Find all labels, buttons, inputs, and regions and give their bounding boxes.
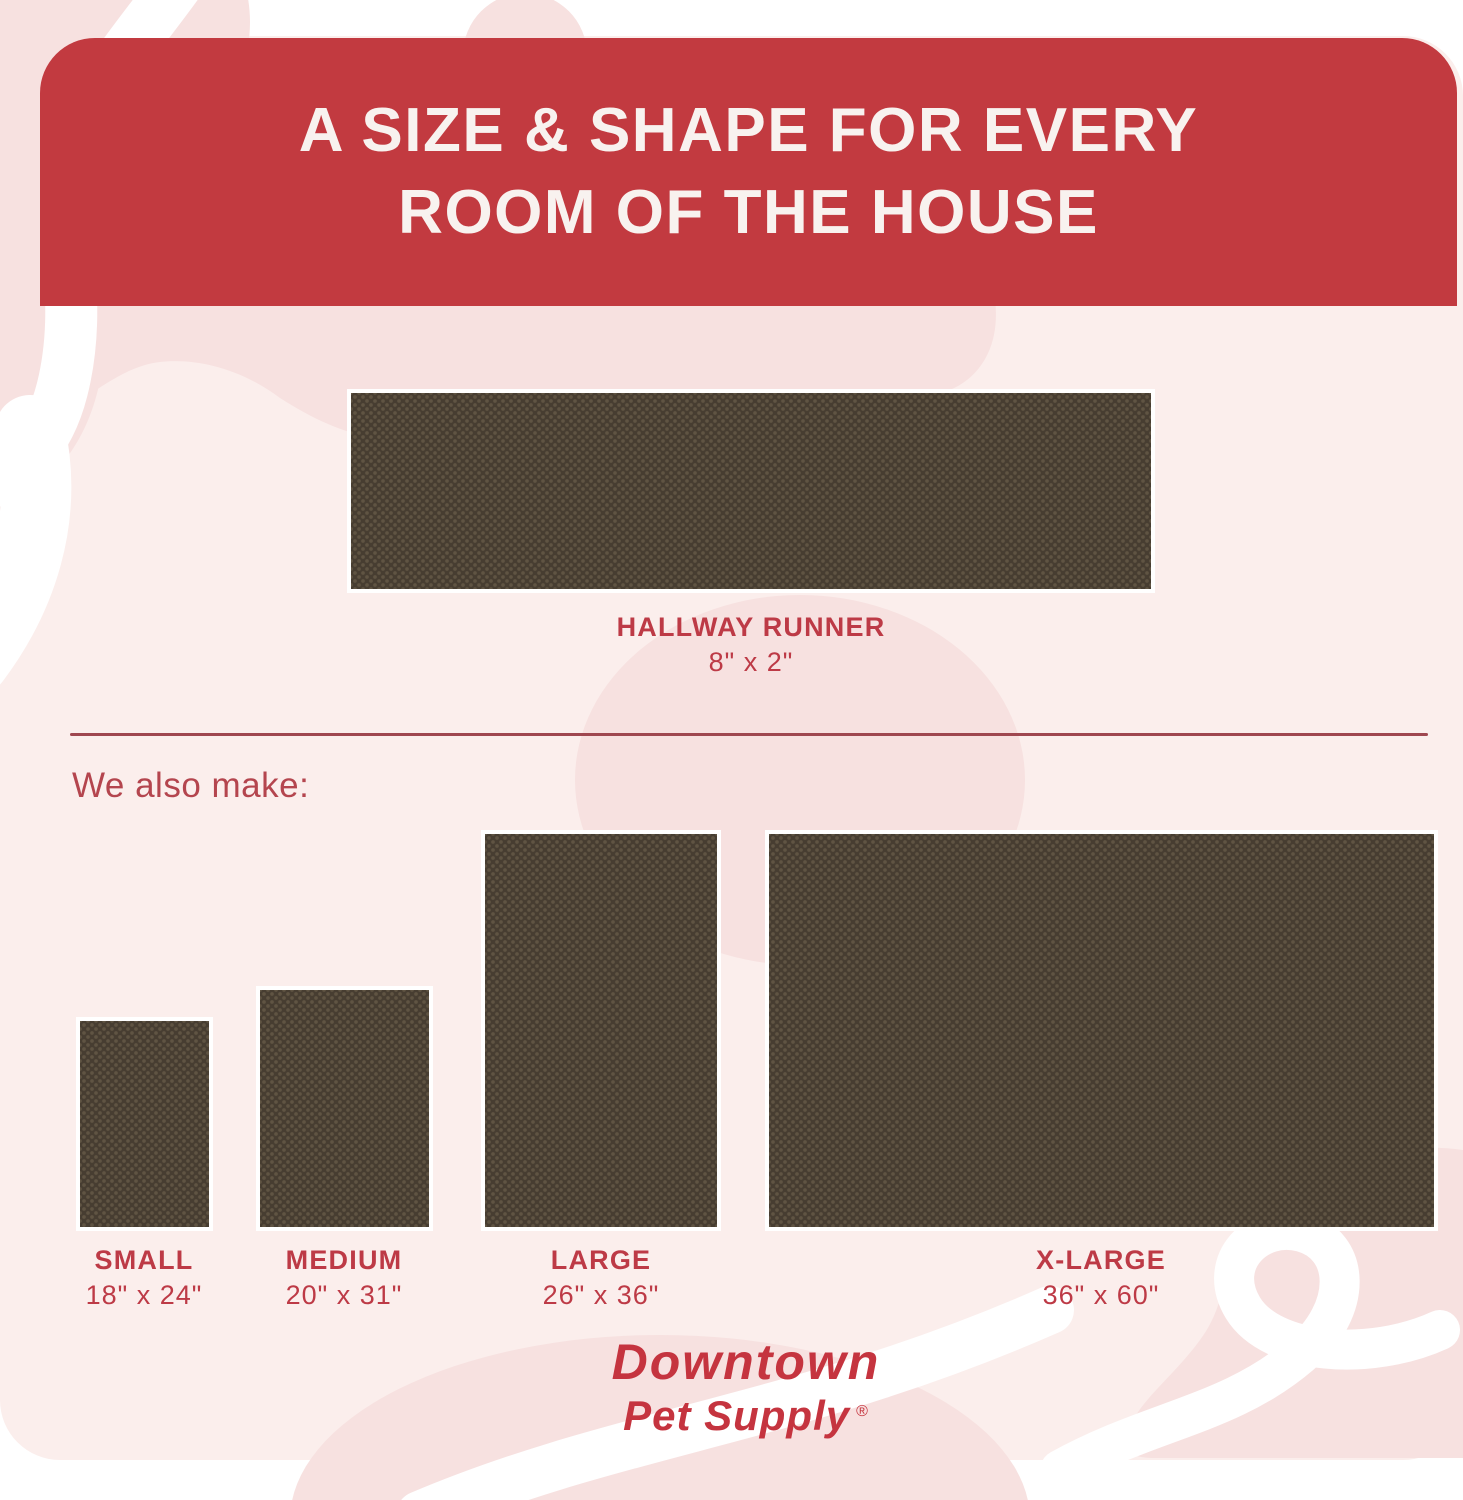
medium-size-label: 20" x 31" [194,1278,494,1312]
page-title-line1: A SIZE & SHAPE FOR EVERY [299,90,1199,172]
xlarge-size-label: 36" x 60" [951,1278,1251,1312]
brand-subname-text: Pet Supply [623,1392,850,1439]
size-guide-infographic: A SIZE & SHAPE FOR EVERY ROOM OF THE HOU… [0,0,1463,1500]
mat-medium [256,986,433,1231]
medium-name-label: MEDIUM [194,1242,494,1278]
mat-small [76,1017,213,1231]
xlarge-label: X-LARGE 36" x 60" [951,1242,1251,1312]
hallway-runner-label: HALLWAY RUNNER 8" x 2" [451,609,1051,679]
hallway-runner-mat [347,389,1155,593]
mat-large [481,830,721,1231]
large-label: LARGE 26" x 36" [451,1242,751,1312]
brand-subname: Pet Supply® [446,1389,1046,1439]
header-banner: A SIZE & SHAPE FOR EVERY ROOM OF THE HOU… [40,38,1457,306]
large-name-label: LARGE [451,1242,751,1278]
page-title-line2: ROOM OF THE HOUSE [398,172,1099,254]
runner-name-label: HALLWAY RUNNER [451,609,1051,645]
medium-label: MEDIUM 20" x 31" [194,1242,494,1312]
also-make-label: We also make: [72,766,309,806]
section-divider [70,733,1428,736]
registered-mark-icon: ® [856,1403,869,1420]
runner-size-label: 8" x 2" [451,645,1051,679]
brand-name: Downtown [446,1335,1046,1389]
large-size-label: 26" x 36" [451,1278,751,1312]
brand-logo: Downtown Pet Supply® [446,1335,1046,1439]
xlarge-name-label: X-LARGE [951,1242,1251,1278]
mat-xlarge [765,830,1438,1231]
